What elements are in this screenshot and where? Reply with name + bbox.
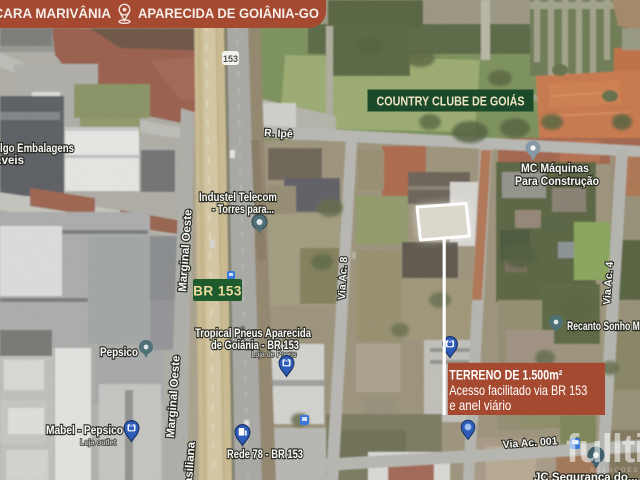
svg-text:fullti: fullti <box>566 427 640 471</box>
svg-text:COUNTRY CLUBE DE GOIÁS: COUNTRY CLUBE DE GOIÁS <box>377 94 525 109</box>
svg-text:Pepsico: Pepsico <box>100 347 138 359</box>
svg-text:...lgo Embalagens: ...lgo Embalagens <box>0 143 74 155</box>
svg-text:TERRENO DE 1.500m²: TERRENO DE 1.500m² <box>449 368 562 383</box>
svg-text:R. Ipê: R. Ipê <box>264 127 293 140</box>
svg-text:...veis: ...veis <box>0 155 24 167</box>
svg-text:APARECIDA DE GOIÂNIA-GO: APARECIDA DE GOIÂNIA-GO <box>138 4 319 21</box>
svg-text:Tropical Pneus Aparecida: Tropical Pneus Aparecida <box>195 328 311 340</box>
svg-text:Industel Telecom: Industel Telecom <box>199 192 277 204</box>
svg-text:Rede 78 - BR 153: Rede 78 - BR 153 <box>227 447 303 461</box>
svg-text:BR 153: BR 153 <box>193 284 242 299</box>
svg-text:MC Máquinas: MC Máquinas <box>521 163 589 175</box>
svg-text:Loja outlet: Loja outlet <box>80 437 117 447</box>
svg-text:Para Construção: Para Construção <box>515 176 599 188</box>
svg-text:- Torres para...: - Torres para... <box>212 204 274 216</box>
svg-text:Acesso facilitado via BR 153: Acesso facilitado via BR 153 <box>449 382 587 398</box>
svg-text:e anel viário: e anel viário <box>449 397 511 413</box>
svg-text:153: 153 <box>223 54 238 64</box>
svg-text:Mabel - Pepsico: Mabel - Pepsico <box>46 423 123 437</box>
svg-text:SOLUÇÕES: SOLUÇÕES <box>590 467 639 474</box>
svg-text:ÁCARA MARIVÂNIA: ÁCARA MARIVÂNIA <box>0 4 111 21</box>
svg-text:Recanto Sonho M...: Recanto Sonho M... <box>567 321 640 333</box>
svg-text:Via Ac. 8: Via Ac. 8 <box>336 256 350 300</box>
